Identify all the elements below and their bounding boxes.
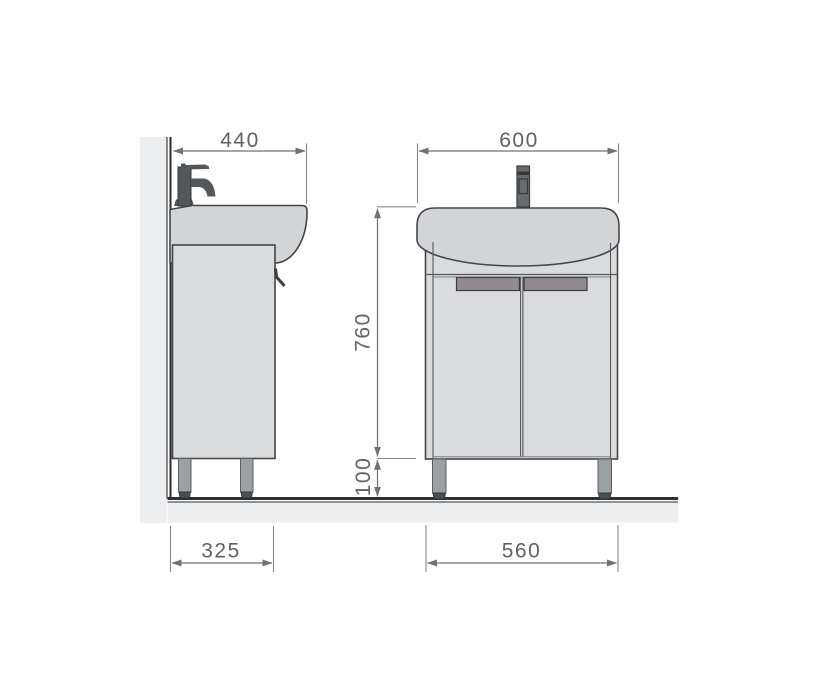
- floor-hatch-band: [168, 503, 679, 523]
- floor: [168, 499, 679, 523]
- dimension-325: 325: [171, 526, 274, 572]
- wall-hatch-band: [140, 137, 167, 523]
- leg-front-left: [433, 459, 447, 493]
- dimension-560: 560: [426, 525, 618, 572]
- door-handle-left: [457, 278, 520, 291]
- wall: [140, 137, 171, 523]
- dim-560-label: 560: [502, 540, 542, 563]
- side-view: [170, 164, 307, 499]
- dimension-760: 760: [352, 207, 417, 459]
- dim-100-label: 100: [352, 457, 375, 497]
- foot-front-right: [599, 493, 612, 499]
- foot-front-left: [433, 493, 446, 499]
- legs-front: [433, 459, 612, 499]
- cabinet-side: [173, 245, 276, 459]
- leg-front-right: [598, 459, 612, 493]
- technical-drawing-page: 440 600 760 100 325 560: [0, 0, 830, 679]
- front-view: [417, 166, 619, 499]
- leg-side-front: [241, 459, 254, 493]
- door-handle-right: [524, 278, 587, 291]
- faucet-front-handle-band: [517, 172, 530, 176]
- faucet-side-icon: [174, 164, 216, 207]
- foot-side-front: [241, 492, 253, 498]
- dim-440-label: 440: [220, 129, 260, 152]
- faucet-front-icon: [517, 166, 530, 207]
- dim-600-label: 600: [499, 129, 539, 152]
- basin-front: [417, 208, 619, 266]
- vanity-technical-drawing: 440 600 760 100 325 560: [0, 0, 830, 679]
- cabinet-front: [426, 240, 618, 459]
- leg-side-back: [179, 459, 192, 493]
- faucet-side-spout: [191, 179, 216, 197]
- legs-side: [179, 459, 254, 499]
- dim-325-label: 325: [201, 540, 241, 563]
- foot-side-back: [179, 492, 191, 498]
- faucet-side-lever: [181, 164, 209, 171]
- dim-760-label: 760: [352, 312, 375, 352]
- faucet-side-body: [178, 167, 191, 206]
- dimension-100: 100: [352, 457, 378, 497]
- door-handle-side: [276, 269, 285, 287]
